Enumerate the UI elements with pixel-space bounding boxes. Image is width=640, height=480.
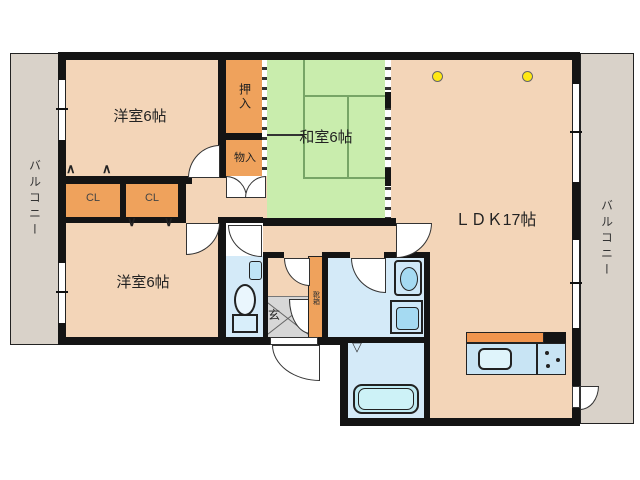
- kitchen-backsplash: [466, 332, 544, 343]
- wall: [218, 217, 226, 337]
- stove-burner: [545, 351, 549, 355]
- wall: [263, 218, 396, 226]
- stove-burner: [556, 358, 560, 362]
- wall: [120, 184, 126, 217]
- ceiling-light-dot: [432, 71, 443, 82]
- wall: [388, 252, 396, 258]
- wall: [58, 176, 192, 184]
- counter-divider: [536, 343, 538, 375]
- entrance-door-leaf: [270, 337, 318, 345]
- window-tick: [56, 291, 68, 293]
- wall: [226, 133, 264, 140]
- oshiire-closet: 押入: [226, 60, 264, 133]
- genkan-label: 玄: [266, 306, 282, 323]
- wall: [263, 252, 268, 337]
- japanese-room-label: 和室6帖: [281, 126, 371, 147]
- shoebox-label: 靴箱: [311, 291, 321, 305]
- window-tick: [570, 131, 582, 133]
- wall: [424, 252, 430, 418]
- balcony-left: バルコニー: [10, 53, 60, 345]
- stove-burner: [546, 364, 550, 368]
- floor-plan: バルコニー バルコニー 押入 物入 CL CL 玄 靴箱 ▽: [0, 0, 640, 480]
- wall: [178, 176, 186, 223]
- toilet-bowl: [234, 284, 256, 316]
- washing-machine-space: [390, 300, 423, 334]
- wall: [322, 252, 350, 258]
- entrance-door-swing: [272, 345, 320, 381]
- closet-door-mark: ∧: [102, 164, 112, 174]
- toilet-tank: [232, 314, 258, 333]
- washroom-sink: [394, 260, 422, 296]
- bath-folding-door-icon: ▽: [352, 342, 362, 352]
- wall: [58, 217, 178, 223]
- wall: [385, 92, 391, 108]
- closet-door-mark: ∧: [66, 164, 76, 174]
- bedroom-bottom-label: 洋室6帖: [88, 271, 198, 292]
- balcony-right: バルコニー: [580, 53, 634, 424]
- window-tick: [56, 108, 68, 110]
- tatami-line: [303, 60, 305, 178]
- window: [572, 240, 580, 328]
- shoebox: 靴箱: [308, 256, 323, 340]
- closet-1-label: CL: [66, 192, 120, 204]
- window: [572, 84, 580, 182]
- tatami-line: [303, 177, 385, 179]
- fusuma-track: [385, 60, 391, 218]
- wall: [340, 418, 580, 426]
- bathtub: [353, 384, 419, 414]
- monoire-label: 物入: [226, 149, 264, 165]
- closet-door-mark: ∨: [164, 217, 174, 227]
- wall: [58, 52, 580, 60]
- balcony-left-label: バルコニー: [27, 159, 44, 239]
- tatami-line: [303, 95, 385, 97]
- balcony-door-leaf: [572, 386, 580, 408]
- ceiling-light-dot: [522, 71, 533, 82]
- window-tick: [570, 282, 582, 284]
- wall: [322, 252, 328, 343]
- toilet-hand-basin: [249, 261, 262, 280]
- wall: [226, 217, 263, 223]
- wall: [326, 337, 426, 343]
- window: [58, 263, 66, 323]
- wall: [340, 337, 348, 426]
- bedroom-top-label: 洋室6帖: [85, 105, 195, 126]
- closet-2-label: CL: [126, 192, 178, 204]
- fusuma-track: [262, 60, 267, 176]
- wall: [544, 332, 566, 343]
- window: [58, 80, 66, 140]
- wall: [385, 168, 391, 186]
- kitchen-sink: [478, 348, 512, 370]
- oshiire-label: 押入: [237, 83, 254, 111]
- ldk-label: ＬＤＫ17帖: [438, 206, 553, 230]
- closet-door-mark: ∨: [127, 217, 137, 227]
- balcony-right-label: バルコニー: [599, 199, 616, 279]
